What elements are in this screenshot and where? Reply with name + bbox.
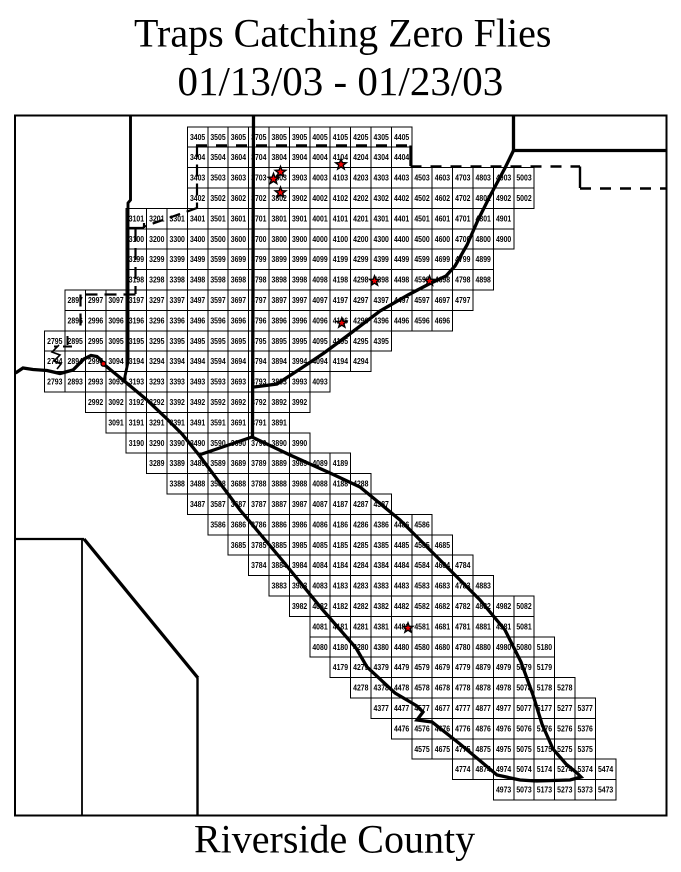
- svg-text:2993: 2993: [88, 377, 104, 387]
- svg-text:4205: 4205: [353, 132, 369, 142]
- svg-text:3487: 3487: [190, 499, 206, 509]
- svg-text:4405: 4405: [394, 132, 410, 142]
- svg-text:4377: 4377: [374, 703, 390, 713]
- svg-text:3595: 3595: [210, 336, 226, 346]
- svg-text:3804: 3804: [272, 152, 288, 162]
- svg-text:4087: 4087: [312, 499, 328, 509]
- svg-text:3805: 3805: [272, 132, 288, 142]
- svg-text:4189: 4189: [333, 458, 349, 468]
- svg-text:3094: 3094: [108, 356, 124, 366]
- svg-text:4304: 4304: [374, 152, 390, 162]
- svg-text:4502: 4502: [414, 193, 430, 203]
- svg-text:4774: 4774: [455, 764, 471, 774]
- svg-text:4702: 4702: [455, 193, 471, 203]
- svg-text:3392: 3392: [170, 397, 186, 407]
- svg-text:3091: 3091: [108, 417, 124, 427]
- svg-text:4696: 4696: [435, 315, 451, 325]
- svg-text:Riverside County: Riverside County: [194, 817, 475, 862]
- svg-text:4586: 4586: [414, 519, 430, 529]
- svg-text:5082: 5082: [516, 601, 532, 611]
- svg-text:3096: 3096: [108, 315, 124, 325]
- svg-text:3092: 3092: [108, 397, 124, 407]
- svg-text:5278: 5278: [557, 683, 573, 693]
- svg-text:3886: 3886: [272, 519, 288, 529]
- svg-text:4877: 4877: [476, 703, 492, 713]
- svg-text:4403: 4403: [394, 173, 410, 183]
- svg-text:4098: 4098: [312, 275, 328, 285]
- svg-text:3496: 3496: [190, 315, 206, 325]
- svg-text:3191: 3191: [129, 417, 145, 427]
- svg-text:2997: 2997: [88, 295, 104, 305]
- svg-text:4503: 4503: [414, 173, 430, 183]
- svg-text:3904: 3904: [292, 152, 308, 162]
- svg-text:4005: 4005: [312, 132, 328, 142]
- svg-text:4680: 4680: [435, 642, 451, 652]
- svg-text:5275: 5275: [557, 744, 573, 754]
- svg-text:4402: 4402: [394, 193, 410, 203]
- svg-text:3393: 3393: [170, 377, 186, 387]
- svg-text:4386: 4386: [374, 519, 390, 529]
- svg-text:4302: 4302: [374, 193, 390, 203]
- svg-text:5179: 5179: [537, 662, 553, 672]
- svg-text:4097: 4097: [312, 295, 328, 305]
- svg-text:4677: 4677: [435, 703, 451, 713]
- svg-text:5173: 5173: [537, 785, 553, 795]
- svg-text:2992: 2992: [88, 397, 104, 407]
- svg-text:4400: 4400: [394, 234, 410, 244]
- svg-text:3695: 3695: [231, 336, 247, 346]
- svg-text:4105: 4105: [333, 132, 349, 142]
- svg-text:3399: 3399: [170, 254, 186, 264]
- svg-text:4381: 4381: [374, 621, 390, 631]
- svg-text:3903: 3903: [292, 173, 308, 183]
- svg-text:4478: 4478: [394, 683, 410, 693]
- svg-text:3686: 3686: [231, 519, 247, 529]
- svg-text:4881: 4881: [476, 621, 492, 631]
- svg-text:3398: 3398: [170, 275, 186, 285]
- svg-text:3501: 3501: [210, 213, 226, 223]
- svg-text:5178: 5178: [537, 683, 553, 693]
- svg-text:3504: 3504: [210, 152, 226, 162]
- svg-text:3597: 3597: [210, 295, 226, 305]
- svg-text:4000: 4000: [312, 234, 328, 244]
- svg-text:3993: 3993: [292, 377, 308, 387]
- svg-text:4679: 4679: [435, 662, 451, 672]
- svg-text:4203: 4203: [353, 173, 369, 183]
- svg-text:5180: 5180: [537, 642, 553, 652]
- svg-text:3894: 3894: [272, 356, 288, 366]
- svg-text:4797: 4797: [455, 295, 471, 305]
- svg-text:3694: 3694: [231, 356, 247, 366]
- svg-text:3396: 3396: [170, 315, 186, 325]
- svg-text:4879: 4879: [476, 662, 492, 672]
- svg-text:4395: 4395: [374, 336, 390, 346]
- svg-text:4976: 4976: [496, 723, 512, 733]
- svg-text:4396: 4396: [374, 315, 390, 325]
- svg-text:5002: 5002: [516, 193, 532, 203]
- svg-text:2895: 2895: [68, 336, 84, 346]
- svg-text:4096: 4096: [312, 315, 328, 325]
- svg-text:2793: 2793: [47, 377, 63, 387]
- svg-text:3192: 3192: [129, 397, 145, 407]
- svg-text:3693: 3693: [231, 377, 247, 387]
- svg-text:4202: 4202: [353, 193, 369, 203]
- svg-text:4004: 4004: [312, 152, 328, 162]
- svg-text:4579: 4579: [414, 662, 430, 672]
- svg-text:5003: 5003: [516, 173, 532, 183]
- svg-text:4480: 4480: [394, 642, 410, 652]
- svg-text:3592: 3592: [210, 397, 226, 407]
- svg-text:3097: 3097: [108, 295, 124, 305]
- svg-text:4975: 4975: [496, 744, 512, 754]
- svg-text:3291: 3291: [149, 417, 165, 427]
- svg-text:4596: 4596: [414, 315, 430, 325]
- svg-text:4782: 4782: [455, 601, 471, 611]
- svg-text:3899: 3899: [272, 254, 288, 264]
- svg-text:4499: 4499: [394, 254, 410, 264]
- svg-text:3982: 3982: [292, 601, 308, 611]
- svg-text:4199: 4199: [333, 254, 349, 264]
- svg-text:3986: 3986: [292, 519, 308, 529]
- svg-text:3898: 3898: [272, 275, 288, 285]
- svg-text:4084: 4084: [312, 560, 328, 570]
- svg-text:5080: 5080: [516, 642, 532, 652]
- svg-text:3992: 3992: [292, 397, 308, 407]
- svg-text:4582: 4582: [414, 601, 430, 611]
- svg-text:3196: 3196: [129, 315, 145, 325]
- svg-text:4977: 4977: [496, 703, 512, 713]
- svg-text:3394: 3394: [170, 356, 186, 366]
- svg-text:3891: 3891: [272, 417, 288, 427]
- svg-text:4496: 4496: [394, 315, 410, 325]
- svg-text:5075: 5075: [516, 744, 532, 754]
- svg-text:3697: 3697: [231, 295, 247, 305]
- svg-text:3197: 3197: [129, 295, 145, 305]
- svg-text:3990: 3990: [292, 438, 308, 448]
- svg-text:4876: 4876: [476, 723, 492, 733]
- svg-text:3500: 3500: [210, 234, 226, 244]
- svg-text:4898: 4898: [476, 275, 492, 285]
- svg-text:4300: 4300: [374, 234, 390, 244]
- svg-text:3299: 3299: [149, 254, 165, 264]
- svg-text:4198: 4198: [333, 275, 349, 285]
- svg-text:3502: 3502: [210, 193, 226, 203]
- svg-text:4878: 4878: [476, 683, 492, 693]
- svg-text:3591: 3591: [210, 417, 226, 427]
- svg-text:4200: 4200: [353, 234, 369, 244]
- svg-text:4899: 4899: [476, 254, 492, 264]
- svg-text:3601: 3601: [231, 213, 247, 223]
- svg-text:2795: 2795: [47, 336, 63, 346]
- svg-text:3787: 3787: [251, 499, 267, 509]
- svg-text:3295: 3295: [149, 336, 165, 346]
- svg-text:3400: 3400: [190, 234, 206, 244]
- svg-text:5375: 5375: [578, 744, 594, 754]
- svg-text:4482: 4482: [394, 601, 410, 611]
- svg-text:4187: 4187: [333, 499, 349, 509]
- svg-text:4974: 4974: [496, 764, 512, 774]
- svg-text:4875: 4875: [476, 744, 492, 754]
- svg-text:4379: 4379: [374, 662, 390, 672]
- svg-text:4295: 4295: [353, 336, 369, 346]
- svg-text:4383: 4383: [374, 581, 390, 591]
- svg-text:3587: 3587: [210, 499, 226, 509]
- svg-text:5077: 5077: [516, 703, 532, 713]
- svg-text:3691: 3691: [231, 417, 247, 427]
- svg-text:5174: 5174: [537, 764, 553, 774]
- svg-text:01/13/03 - 01/23/03: 01/13/03 - 01/23/03: [178, 58, 504, 104]
- svg-text:3290: 3290: [149, 438, 165, 448]
- svg-text:5073: 5073: [516, 785, 532, 795]
- svg-text:4603: 4603: [435, 173, 451, 183]
- svg-text:4401: 4401: [394, 213, 410, 223]
- svg-text:3905: 3905: [292, 132, 308, 142]
- svg-text:3586: 3586: [210, 519, 226, 529]
- svg-text:4179: 4179: [333, 662, 349, 672]
- svg-text:4399: 4399: [374, 254, 390, 264]
- svg-text:3896: 3896: [272, 315, 288, 325]
- svg-text:4778: 4778: [455, 683, 471, 693]
- svg-text:4384: 4384: [374, 560, 390, 570]
- svg-text:4575: 4575: [414, 744, 430, 754]
- svg-text:4102: 4102: [333, 193, 349, 203]
- svg-text:4485: 4485: [394, 540, 410, 550]
- svg-text:5474: 5474: [598, 764, 614, 774]
- svg-text:4780: 4780: [455, 642, 471, 652]
- svg-text:4581: 4581: [414, 621, 430, 631]
- svg-text:4283: 4283: [353, 581, 369, 591]
- svg-text:4601: 4601: [435, 213, 451, 223]
- svg-text:5277: 5277: [557, 703, 573, 713]
- svg-text:4777: 4777: [455, 703, 471, 713]
- svg-text:4682: 4682: [435, 601, 451, 611]
- svg-text:4194: 4194: [333, 356, 349, 366]
- svg-text:3984: 3984: [292, 560, 308, 570]
- svg-text:3491: 3491: [190, 417, 206, 427]
- svg-text:3596: 3596: [210, 315, 226, 325]
- svg-text:5377: 5377: [578, 703, 594, 713]
- svg-text:3883: 3883: [272, 581, 288, 591]
- svg-text:3405: 3405: [190, 132, 206, 142]
- svg-text:4182: 4182: [333, 601, 349, 611]
- svg-text:3892: 3892: [272, 397, 288, 407]
- svg-text:3298: 3298: [149, 275, 165, 285]
- svg-text:4184: 4184: [333, 560, 349, 570]
- svg-text:4484: 4484: [394, 560, 410, 570]
- svg-text:4003: 4003: [312, 173, 328, 183]
- svg-text:4685: 4685: [435, 540, 451, 550]
- svg-text:4001: 4001: [312, 213, 328, 223]
- svg-text:4382: 4382: [374, 601, 390, 611]
- svg-text:3505: 3505: [210, 132, 226, 142]
- svg-text:3605: 3605: [231, 132, 247, 142]
- svg-text:4880: 4880: [476, 642, 492, 652]
- svg-text:3801: 3801: [272, 213, 288, 223]
- svg-text:5076: 5076: [516, 723, 532, 733]
- svg-text:4282: 4282: [353, 601, 369, 611]
- svg-text:4284: 4284: [353, 560, 369, 570]
- svg-text:3589: 3589: [210, 458, 226, 468]
- svg-text:4800: 4800: [476, 234, 492, 244]
- svg-text:3988: 3988: [292, 479, 308, 489]
- svg-text:3901: 3901: [292, 213, 308, 223]
- svg-text:3985: 3985: [292, 540, 308, 550]
- svg-text:4584: 4584: [414, 560, 430, 570]
- svg-text:4281: 4281: [353, 621, 369, 631]
- svg-text:3692: 3692: [231, 397, 247, 407]
- svg-text:4781: 4781: [455, 621, 471, 631]
- svg-text:3497: 3497: [190, 295, 206, 305]
- svg-text:3492: 3492: [190, 397, 206, 407]
- svg-text:4580: 4580: [414, 642, 430, 652]
- svg-text:3494: 3494: [190, 356, 206, 366]
- svg-text:4080: 4080: [312, 642, 328, 652]
- svg-text:4081: 4081: [312, 621, 328, 631]
- svg-text:5273: 5273: [557, 785, 573, 795]
- svg-text:3598: 3598: [210, 275, 226, 285]
- svg-text:3488: 3488: [190, 479, 206, 489]
- svg-text:3895: 3895: [272, 336, 288, 346]
- svg-text:4297: 4297: [353, 295, 369, 305]
- svg-text:4703: 4703: [455, 173, 471, 183]
- svg-text:4083: 4083: [312, 581, 328, 591]
- svg-text:4678: 4678: [435, 683, 451, 693]
- svg-text:3688: 3688: [231, 479, 247, 489]
- svg-text:4404: 4404: [394, 152, 410, 162]
- svg-text:4201: 4201: [353, 213, 369, 223]
- svg-text:4597: 4597: [414, 295, 430, 305]
- svg-text:5081: 5081: [516, 621, 532, 631]
- svg-text:4982: 4982: [496, 601, 512, 611]
- svg-text:4681: 4681: [435, 621, 451, 631]
- svg-text:4100: 4100: [333, 234, 349, 244]
- svg-text:4086: 4086: [312, 519, 328, 529]
- svg-text:4286: 4286: [353, 519, 369, 529]
- svg-text:3689: 3689: [231, 458, 247, 468]
- svg-text:4902: 4902: [496, 193, 512, 203]
- svg-text:4397: 4397: [374, 295, 390, 305]
- svg-text:4500: 4500: [414, 234, 430, 244]
- svg-text:4299: 4299: [353, 254, 369, 264]
- svg-text:4599: 4599: [414, 254, 430, 264]
- svg-text:3600: 3600: [231, 234, 247, 244]
- svg-text:2996: 2996: [88, 315, 104, 325]
- svg-text:4185: 4185: [333, 540, 349, 550]
- svg-text:3194: 3194: [129, 356, 145, 366]
- svg-text:4385: 4385: [374, 540, 390, 550]
- svg-text:3397: 3397: [170, 295, 186, 305]
- svg-text:3996: 3996: [292, 315, 308, 325]
- svg-text:4278: 4278: [353, 683, 369, 693]
- svg-text:4602: 4602: [435, 193, 451, 203]
- svg-text:3594: 3594: [210, 356, 226, 366]
- svg-text:3499: 3499: [190, 254, 206, 264]
- svg-text:Traps Catching Zero Flies: Traps Catching Zero Flies: [134, 11, 551, 56]
- svg-text:4776: 4776: [455, 723, 471, 733]
- svg-text:4675: 4675: [435, 744, 451, 754]
- svg-text:3698: 3698: [231, 275, 247, 285]
- svg-text:3296: 3296: [149, 315, 165, 325]
- svg-text:3297: 3297: [149, 295, 165, 305]
- svg-text:4095: 4095: [312, 336, 328, 346]
- svg-text:3101: 3101: [129, 213, 145, 223]
- svg-text:4498: 4498: [394, 275, 410, 285]
- svg-text:4978: 4978: [496, 683, 512, 693]
- svg-text:3603: 3603: [231, 173, 247, 183]
- svg-text:3401: 3401: [190, 213, 206, 223]
- svg-text:5374: 5374: [578, 764, 594, 774]
- svg-text:4305: 4305: [374, 132, 390, 142]
- svg-text:4576: 4576: [414, 723, 430, 733]
- svg-text:4197: 4197: [333, 295, 349, 305]
- svg-text:4900: 4900: [496, 234, 512, 244]
- svg-text:3195: 3195: [129, 336, 145, 346]
- svg-text:4002: 4002: [312, 193, 328, 203]
- svg-text:3997: 3997: [292, 295, 308, 305]
- svg-text:3998: 3998: [292, 275, 308, 285]
- svg-text:4779: 4779: [455, 662, 471, 672]
- svg-text:2893: 2893: [68, 377, 84, 387]
- svg-text:4298: 4298: [353, 275, 369, 285]
- svg-text:3395: 3395: [170, 336, 186, 346]
- svg-text:3498: 3498: [190, 275, 206, 285]
- svg-text:3095: 3095: [108, 336, 124, 346]
- svg-text:3999: 3999: [292, 254, 308, 264]
- svg-text:3995: 3995: [292, 336, 308, 346]
- svg-text:4578: 4578: [414, 683, 430, 693]
- svg-text:4798: 4798: [455, 275, 471, 285]
- svg-text:3699: 3699: [231, 254, 247, 264]
- svg-text:3685: 3685: [231, 540, 247, 550]
- svg-text:5276: 5276: [557, 723, 573, 733]
- svg-text:2995: 2995: [88, 336, 104, 346]
- svg-text:4699: 4699: [435, 254, 451, 264]
- svg-text:3388: 3388: [170, 479, 186, 489]
- svg-text:3293: 3293: [149, 377, 165, 387]
- svg-text:4294: 4294: [353, 356, 369, 366]
- svg-text:4697: 4697: [435, 295, 451, 305]
- svg-text:5373: 5373: [578, 785, 594, 795]
- svg-text:4301: 4301: [374, 213, 390, 223]
- svg-text:4099: 4099: [312, 254, 328, 264]
- svg-text:3788: 3788: [251, 479, 267, 489]
- svg-text:4285: 4285: [353, 540, 369, 550]
- svg-text:3784: 3784: [251, 560, 267, 570]
- svg-text:4085: 4085: [312, 540, 328, 550]
- svg-text:4901: 4901: [496, 213, 512, 223]
- svg-text:3789: 3789: [251, 458, 267, 468]
- svg-text:4380: 4380: [374, 642, 390, 652]
- svg-text:3902: 3902: [292, 193, 308, 203]
- svg-text:5074: 5074: [516, 764, 532, 774]
- svg-text:4180: 4180: [333, 642, 349, 652]
- svg-text:4476: 4476: [394, 723, 410, 733]
- svg-text:4600: 4600: [435, 234, 451, 244]
- svg-text:4683: 4683: [435, 581, 451, 591]
- svg-text:3888: 3888: [272, 479, 288, 489]
- svg-text:4186: 4186: [333, 519, 349, 529]
- svg-text:3495: 3495: [190, 336, 206, 346]
- svg-text:4483: 4483: [394, 581, 410, 591]
- svg-text:4973: 4973: [496, 785, 512, 795]
- svg-text:4103: 4103: [333, 173, 349, 183]
- svg-text:3300: 3300: [170, 234, 186, 244]
- svg-text:3602: 3602: [231, 193, 247, 203]
- svg-text:4088: 4088: [312, 479, 328, 489]
- svg-text:5473: 5473: [598, 785, 614, 795]
- svg-text:4183: 4183: [333, 581, 349, 591]
- svg-text:4477: 4477: [394, 703, 410, 713]
